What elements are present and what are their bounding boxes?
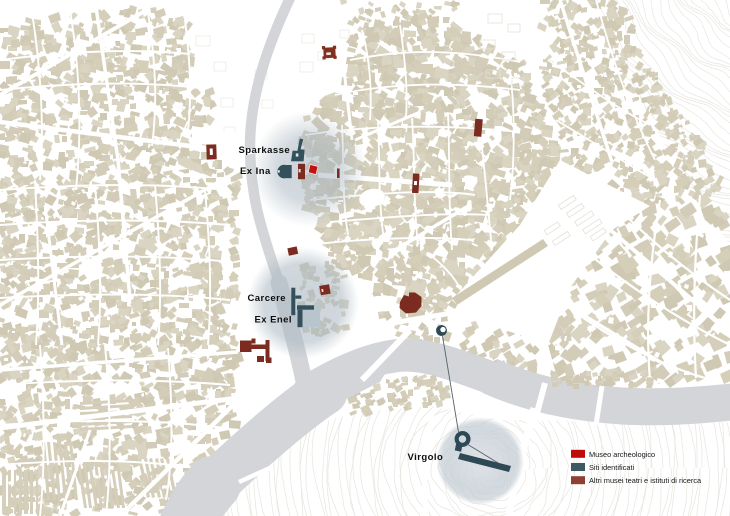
svg-text:Sparkasse: Sparkasse [239,145,291,156]
svg-text:Virgolo: Virgolo [408,452,444,463]
svg-text:Altri musei teatri e istituti: Altri musei teatri e istituti di ricerca [589,476,702,485]
svg-text:Siti identificati: Siti identificati [589,463,635,472]
svg-text:Museo archeologico: Museo archeologico [589,450,655,459]
svg-text:Ex Enel: Ex Enel [255,315,292,326]
svg-text:Carcere: Carcere [248,293,287,304]
svg-text:Ex Ina: Ex Ina [240,166,271,177]
